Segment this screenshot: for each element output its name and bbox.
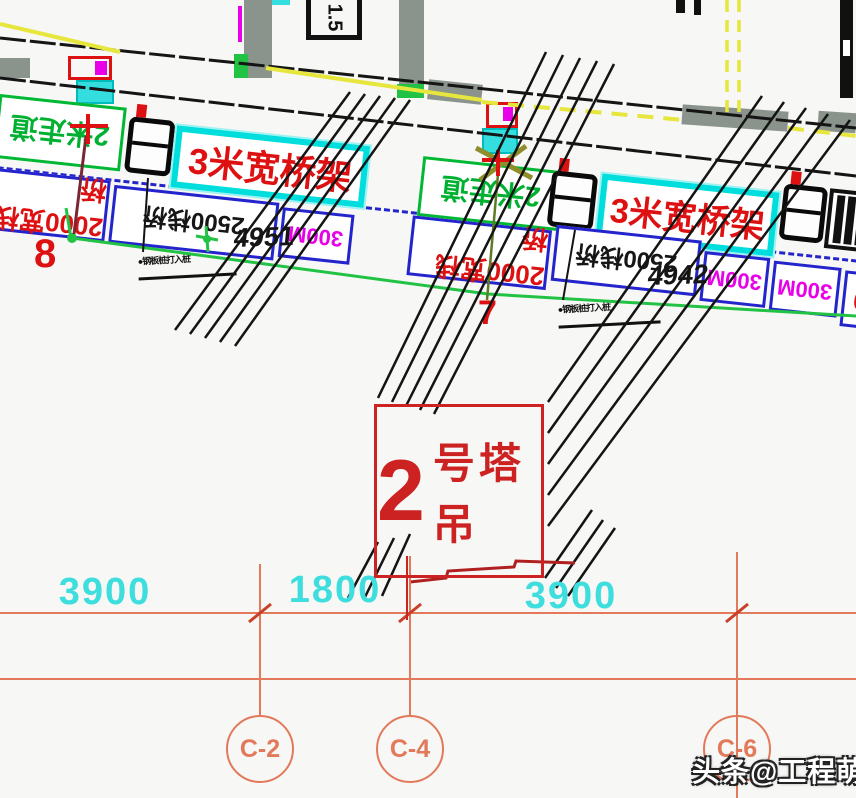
dimension-text: 1800 [272, 568, 398, 612]
tower-crane-box: 2 号塔吊 [374, 404, 544, 578]
dimension-text: 3900 [40, 570, 170, 614]
crane-number: 2 [377, 448, 425, 534]
tie-anchor-crosses [70, 114, 514, 176]
axis-bubble-label: C-4 [376, 729, 444, 769]
watermark: 头条@工程萌主 [692, 750, 856, 790]
crane-label: 号塔吊 [433, 430, 541, 552]
dimension-text: 3900 [506, 574, 636, 618]
cad-drawing-canvas: 1.5 2米走道 3米宽桥架 2米走道 3米宽桥架 2米走道 [0, 0, 856, 798]
crane-tie-line [74, 136, 86, 234]
axis-bubble-label: C-2 [226, 729, 294, 769]
drawing-linework [0, 0, 856, 798]
